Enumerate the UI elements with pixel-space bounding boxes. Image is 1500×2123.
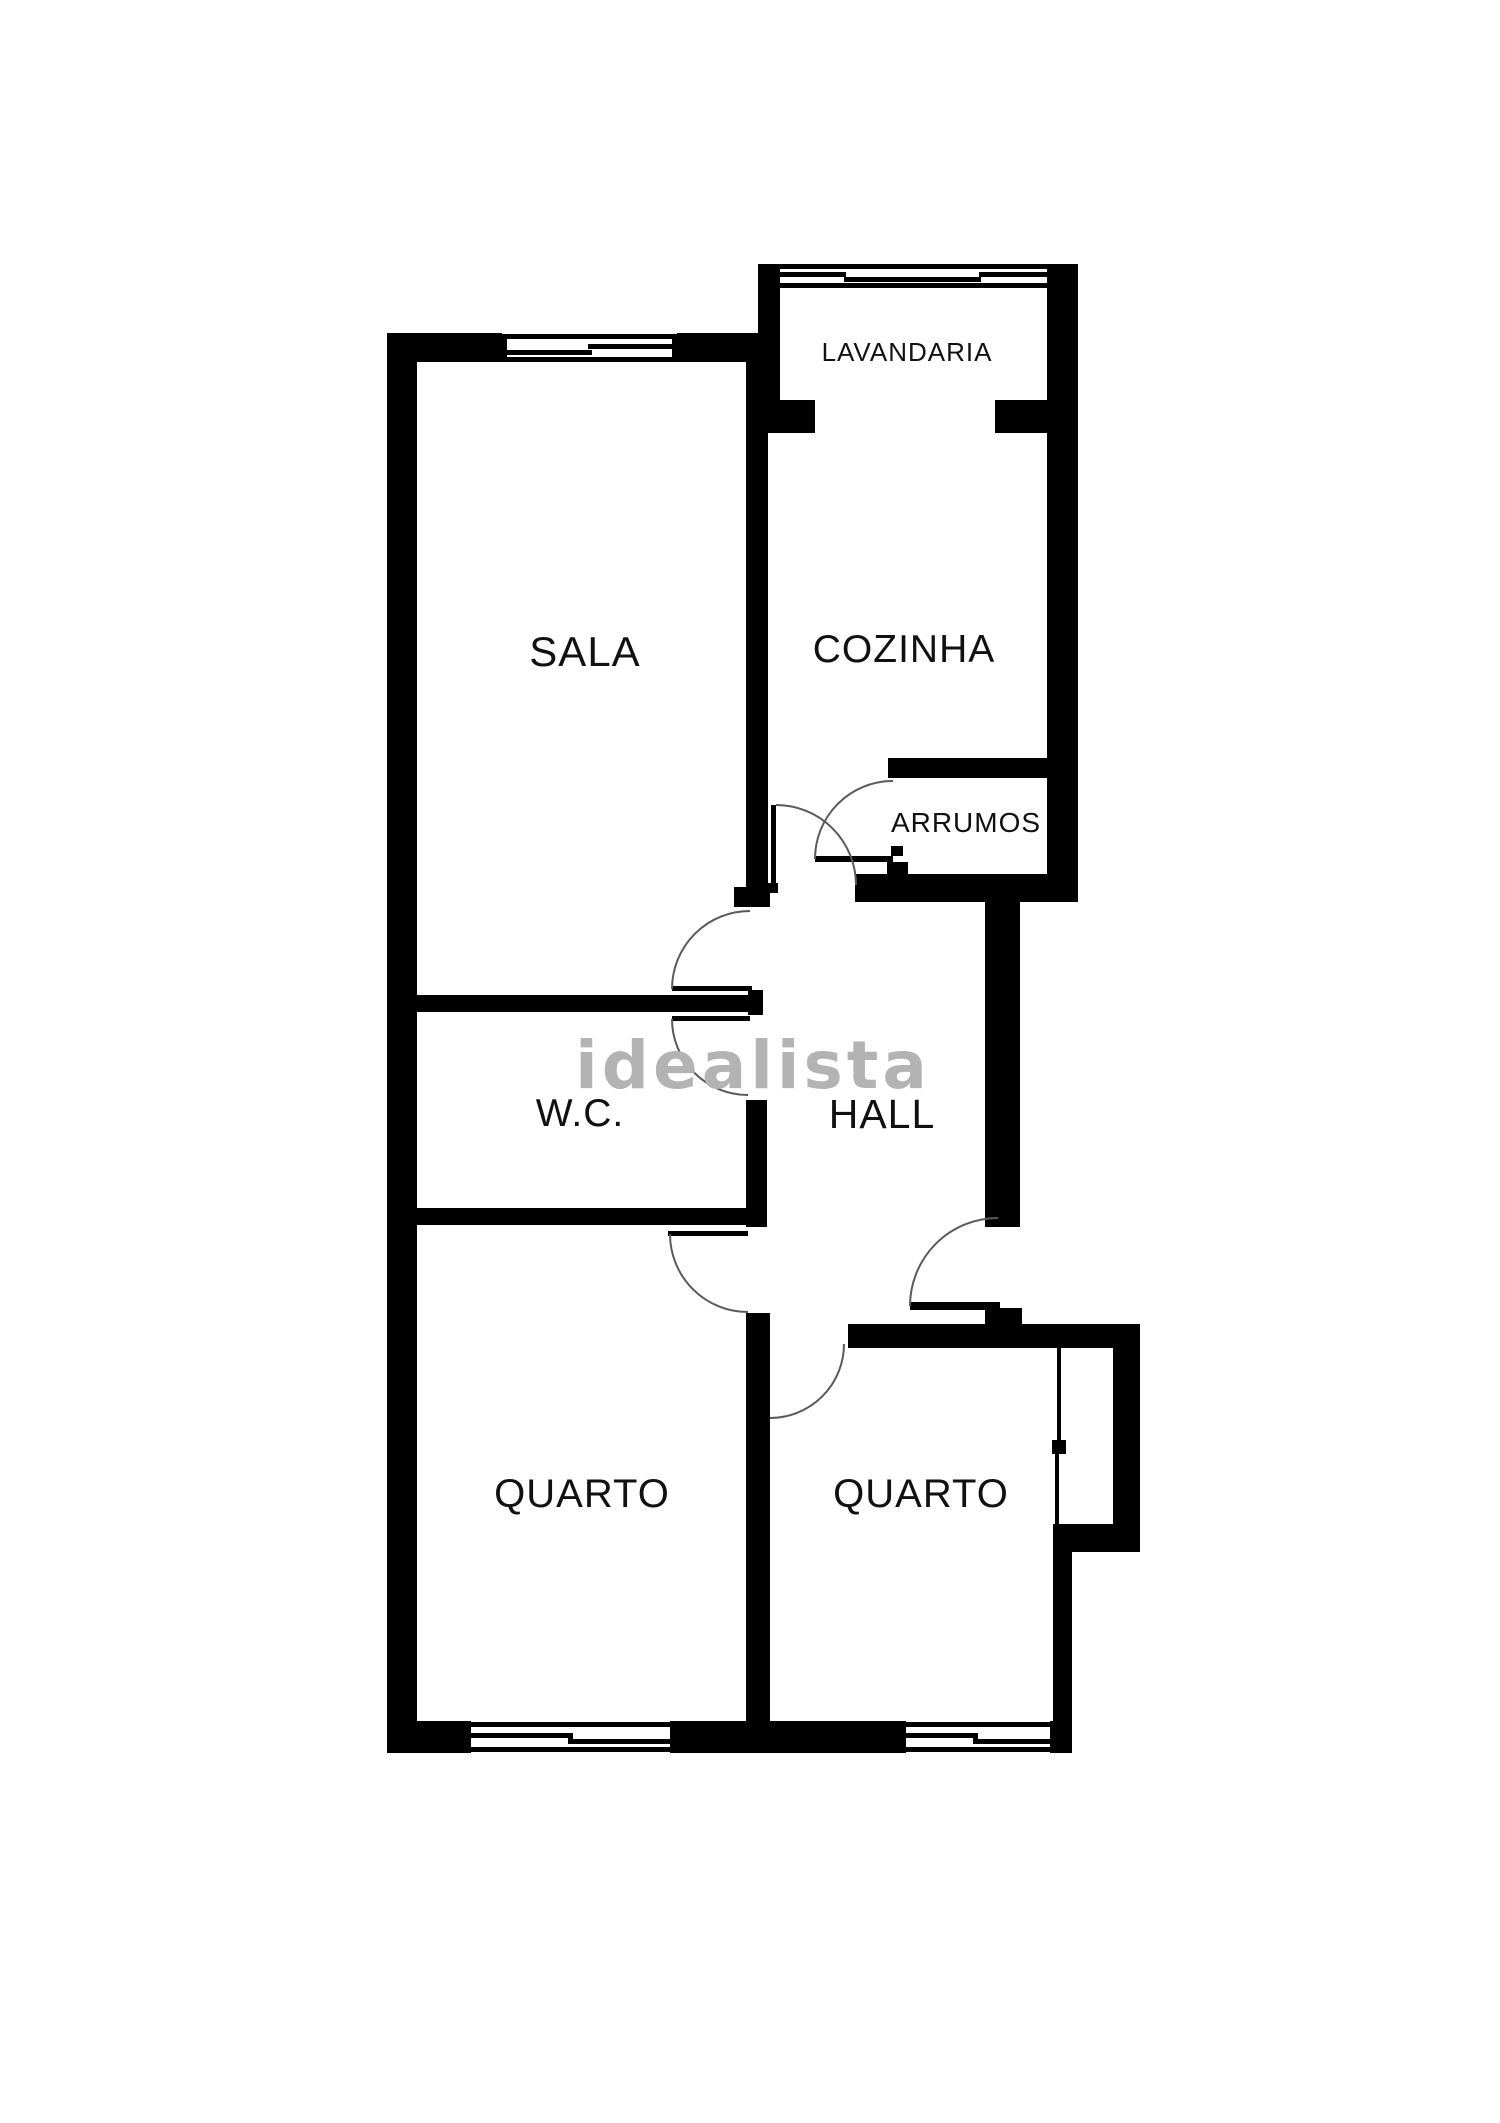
wall-jamb-block [734,887,770,907]
door-hinge-arrumos-b [891,846,903,856]
door-leaf-sala [672,986,752,991]
room-label-quarto-right: QUARTO [833,1472,1009,1516]
wall-bottom-b [670,1721,906,1753]
wall-front-door-block [985,1308,1022,1348]
floor-plan-drawing: idealista LAVANDARIA SALA COZINHA ARRUMO… [0,0,1500,2123]
floor-plan-page: idealista LAVANDARIA SALA COZINHA ARRUMO… [0,0,1500,2123]
wall-quarto-right-side [1053,1524,1072,1753]
wall-stub-lav-left [768,400,815,433]
door-leaf-quarto-left [668,1231,748,1236]
door-hinge-cozinha [766,883,778,893]
wall-bottom-c [1050,1721,1072,1753]
door-hinge-arrumos-a [887,862,908,875]
room-label-lavandaria: LAVANDARIA [822,337,993,367]
wall-wc-bottom [387,1208,748,1225]
door-leaf-cozinha [771,805,776,885]
room-label-sala: SALA [529,628,640,675]
wall-stub-lav-right [995,400,1047,433]
door-leaf-wc [672,1016,750,1021]
wall-wc-right [746,1100,767,1227]
wall-arrumos-top [888,758,1048,778]
wall-arrumos-bottom [855,874,1078,902]
wall-wc-top-cap [748,990,763,1015]
door-leaf-quarto-right [765,1340,770,1420]
wall-wc-top [387,995,748,1012]
room-label-wc: W.C. [536,1092,625,1135]
door-leaf-arrumos [815,856,893,862]
wall-hall-right [985,902,1020,1227]
room-label-hall: HALL [829,1091,936,1137]
wall-balcony-right [1113,1324,1140,1552]
wall-sala-cozinha [746,352,768,907]
wall-left [387,333,417,1753]
wall-right-outer [1047,264,1078,902]
wall-bottom-a [387,1721,471,1753]
room-label-cozinha: COZINHA [813,628,996,671]
door-leaf-front [910,1302,1000,1310]
room-label-quarto-left: QUARTO [494,1472,670,1516]
room-label-arrumos: ARRUMOS [891,807,1041,838]
wall-sala-top-a [387,333,502,362]
